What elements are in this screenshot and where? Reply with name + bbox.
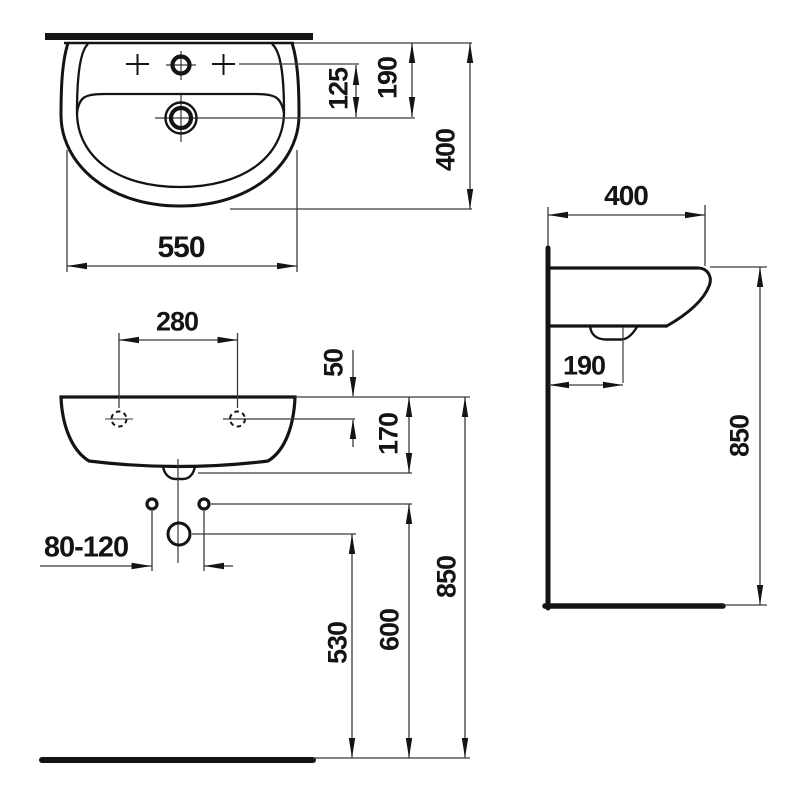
dim-label-plan-width: 550: [157, 233, 204, 263]
dim-label-rim-to-underside: 170: [376, 413, 403, 455]
dim-label-wall-to-drain: 190: [375, 57, 402, 99]
dim-label-supply-spacing: 80-120: [44, 534, 128, 563]
dimension-400-plan: [467, 43, 473, 209]
dimension-190-plan: [409, 43, 415, 117]
dimension-125: [353, 65, 359, 117]
dim-label-side-depth: 400: [604, 182, 648, 210]
basin-nose-profile: [666, 268, 710, 327]
tap-hole-option-left-icon: [126, 54, 149, 75]
waste-outlet-icon: [168, 523, 190, 545]
dim-label-plan-depth: 400: [433, 129, 460, 171]
supply-connection-left-icon: [147, 499, 157, 509]
drawing-canvas: [0, 0, 800, 800]
dimension-600: [406, 504, 412, 758]
supply-connection-right-icon: [199, 499, 209, 509]
dim-label-rim-height-front: 850: [434, 556, 461, 598]
basin-front-outline: [61, 397, 295, 467]
basin-outer-outline: [61, 43, 299, 206]
dim-label-hole-spacing: 280: [156, 309, 198, 336]
dim-label-rim-to-holes: 50: [321, 349, 348, 377]
waste-trap-side: [590, 326, 638, 340]
tap-hole-option-right-icon: [212, 54, 235, 75]
dim-label-rim-height-side: 850: [727, 415, 754, 457]
dim-label-supply-height: 600: [377, 609, 404, 651]
dimension-170: [406, 397, 412, 473]
plan-view: [45, 37, 473, 273]
technical-drawing-washbasin: 550 125 190 400 280 50 170 80-120 530 60…: [0, 0, 800, 800]
dimension-400-side: [548, 205, 705, 266]
dim-label-side-wall-drain: 190: [563, 353, 605, 380]
dimension-50: [350, 350, 356, 447]
dimension-190-side: [549, 382, 623, 388]
dim-label-tap-to-drain: 125: [326, 68, 353, 110]
dimension-850-front: [462, 397, 468, 758]
side-view: [545, 205, 767, 608]
dim-label-outlet-height: 530: [325, 622, 352, 664]
